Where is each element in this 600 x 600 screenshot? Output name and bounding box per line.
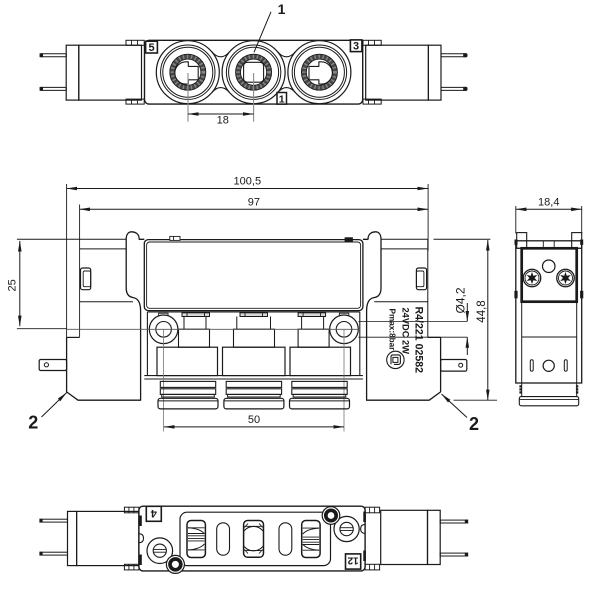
svg-text:24VDC 2W: 24VDC 2W bbox=[401, 308, 411, 355]
svg-text:2: 2 bbox=[28, 412, 38, 432]
svg-text:50: 50 bbox=[248, 414, 260, 426]
svg-text:25: 25 bbox=[6, 279, 18, 291]
svg-text:Pmax:8bar: Pmax:8bar bbox=[388, 309, 397, 352]
svg-text:18,4: 18,4 bbox=[538, 197, 559, 209]
svg-text:100,5: 100,5 bbox=[234, 176, 262, 188]
svg-text:3: 3 bbox=[353, 41, 359, 53]
svg-text:12: 12 bbox=[347, 555, 359, 566]
svg-text:2: 2 bbox=[469, 414, 479, 434]
svg-text:R4/221 02582: R4/221 02582 bbox=[413, 307, 425, 374]
svg-text:5: 5 bbox=[148, 42, 154, 54]
svg-text:97: 97 bbox=[248, 197, 260, 209]
svg-text:1: 1 bbox=[278, 1, 286, 17]
svg-text:Ø4,2: Ø4,2 bbox=[454, 287, 468, 313]
svg-text:18: 18 bbox=[217, 115, 229, 127]
svg-text:4: 4 bbox=[150, 507, 157, 519]
svg-text:44,8: 44,8 bbox=[476, 300, 488, 322]
svg-text:1: 1 bbox=[279, 94, 285, 106]
